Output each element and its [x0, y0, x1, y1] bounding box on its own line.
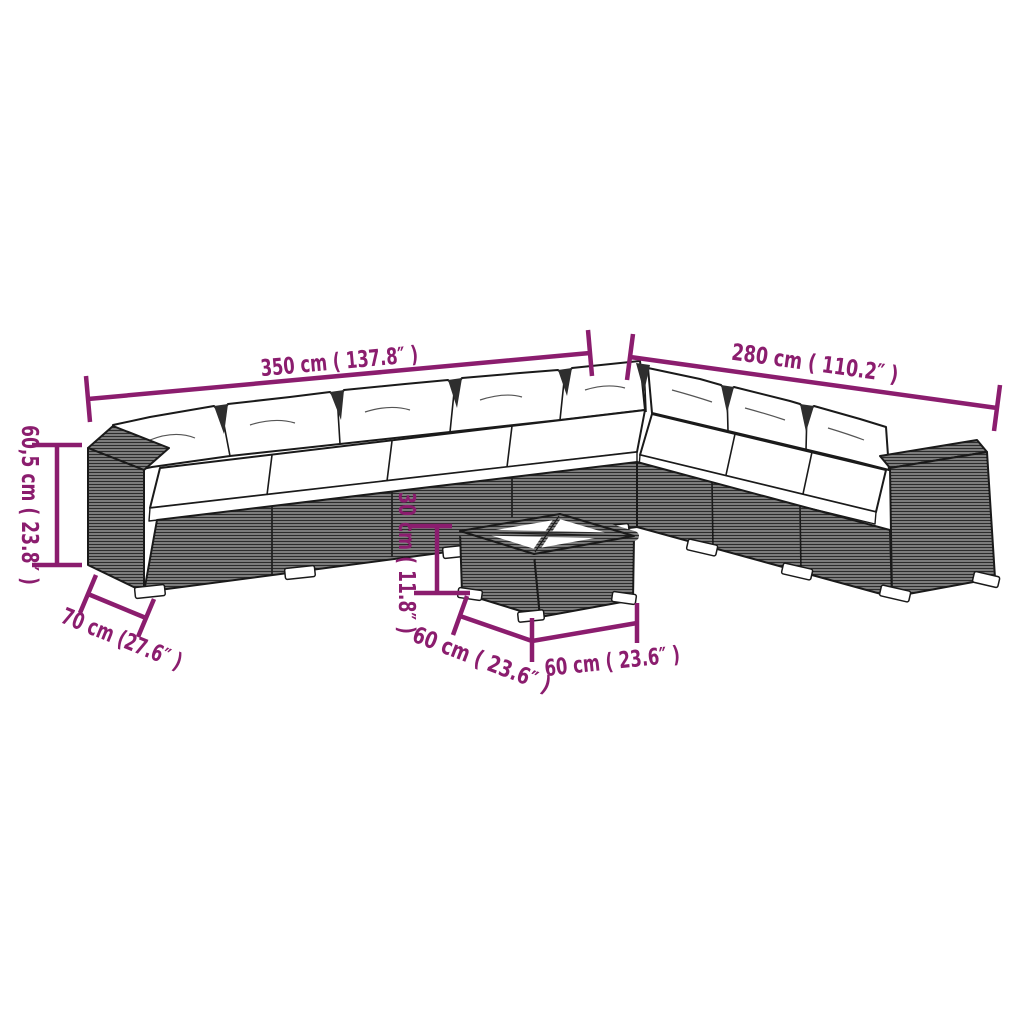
- dimension-sofa-height: 60,5 cm ( 23.8″ ): [16, 425, 82, 585]
- dimension-label-60-right: 60 cm ( 23.6″ ): [543, 642, 681, 682]
- dimension-sofa-depth: 70 cm (27.6″ ): [57, 575, 185, 676]
- dimension-label-30: 30 cm ( 11.8″ ): [393, 492, 419, 634]
- diagram-canvas: 350 cm ( 137.8″ ) 280 cm ( 110.2″ ) 60,5…: [0, 0, 1024, 1024]
- dimension-diagram: 350 cm ( 137.8″ ) 280 cm ( 110.2″ ) 60,5…: [0, 0, 1024, 1024]
- dimension-label-60-5: 60,5 cm ( 23.8″ ): [16, 425, 42, 585]
- dimension-label-70: 70 cm (27.6″ ): [57, 603, 185, 675]
- coffee-table-illustration: [457, 514, 636, 622]
